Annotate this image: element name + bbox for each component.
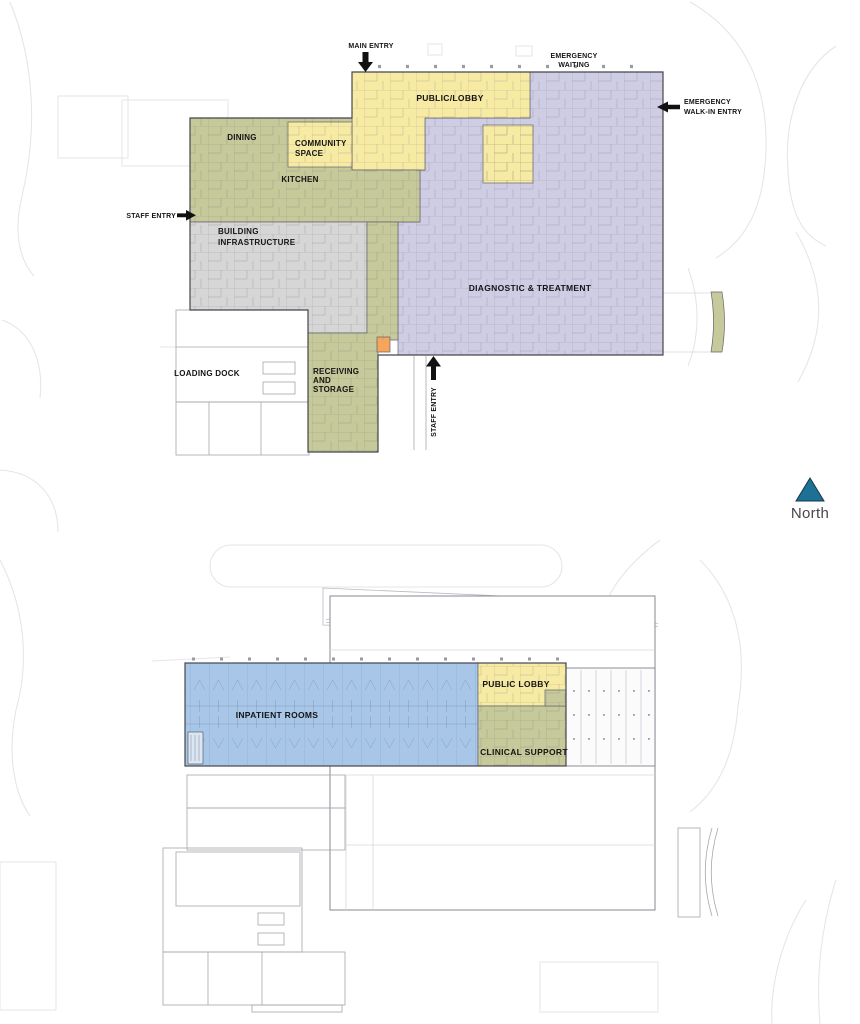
label-public-lobby-l2: PUBLIC LOBBY: [482, 679, 549, 689]
label-dining: DINING: [227, 133, 257, 142]
label-building-infrastructure-1: BUILDING: [218, 227, 259, 236]
label-clinical-support: CLINICAL SUPPORT: [480, 747, 568, 757]
emergency-walk-in-label-1: EMERGENCY: [684, 99, 731, 106]
north-indicator: North: [791, 478, 829, 522]
stair-core: [188, 732, 203, 764]
hospital-floor-plans: PUBLIC/LOBBY DINING COMMUNITY SPACE KITC…: [0, 0, 860, 1024]
label-building-infrastructure-2: INFRASTRUCTURE: [218, 238, 296, 247]
level2-plan: INPATIENT ROOMS PUBLIC LOBBY CLINICAL SU…: [163, 588, 718, 1012]
truck-bay-icon: [263, 382, 295, 394]
north-label: North: [791, 505, 829, 522]
north-arrow-icon: [796, 478, 824, 501]
level1-plan: PUBLIC/LOBBY DINING COMMUNITY SPACE KITC…: [126, 43, 742, 455]
main-entry-label: MAIN ENTRY: [348, 43, 393, 50]
emergency-waiting-label-2: WAITING: [558, 62, 590, 69]
label-community-space-1: COMMUNITY: [295, 139, 347, 148]
label-receiving-storage-1: RECEIVING: [313, 367, 359, 376]
label-public-lobby: PUBLIC/LOBBY: [416, 93, 483, 103]
level1-room-partitions: [190, 72, 663, 452]
label-kitchen: KITCHEN: [281, 175, 318, 184]
emergency-waiting-label-1: EMERGENCY: [551, 53, 598, 60]
truck-bay-icon: [258, 913, 284, 925]
staff-entry-south-arrow-icon: [426, 356, 441, 380]
main-entry-arrow-icon: [358, 52, 373, 72]
zone-link-corridor: [711, 292, 725, 352]
truck-bay-icon: [258, 933, 284, 945]
label-diagnostic-treatment: DIAGNOSTIC & TREATMENT: [469, 283, 592, 293]
truck-bay-icon: [263, 362, 295, 374]
staff-entry-south-label: STAFF ENTRY: [431, 387, 438, 437]
label-loading-dock: LOADING DOCK: [174, 369, 240, 378]
parking-structure-grid: [566, 668, 655, 766]
label-receiving-storage-3: STORAGE: [313, 385, 355, 394]
emergency-walk-in-label-2: WALK-IN ENTRY: [684, 109, 742, 116]
floor-plan-page: PUBLIC/LOBBY DINING COMMUNITY SPACE KITC…: [0, 0, 860, 1024]
label-receiving-storage-2: AND: [313, 376, 331, 385]
staff-entry-west-label: STAFF ENTRY: [126, 213, 176, 220]
label-community-space-2: SPACE: [295, 149, 324, 158]
label-inpatient-rooms: INPATIENT ROOMS: [236, 710, 319, 720]
